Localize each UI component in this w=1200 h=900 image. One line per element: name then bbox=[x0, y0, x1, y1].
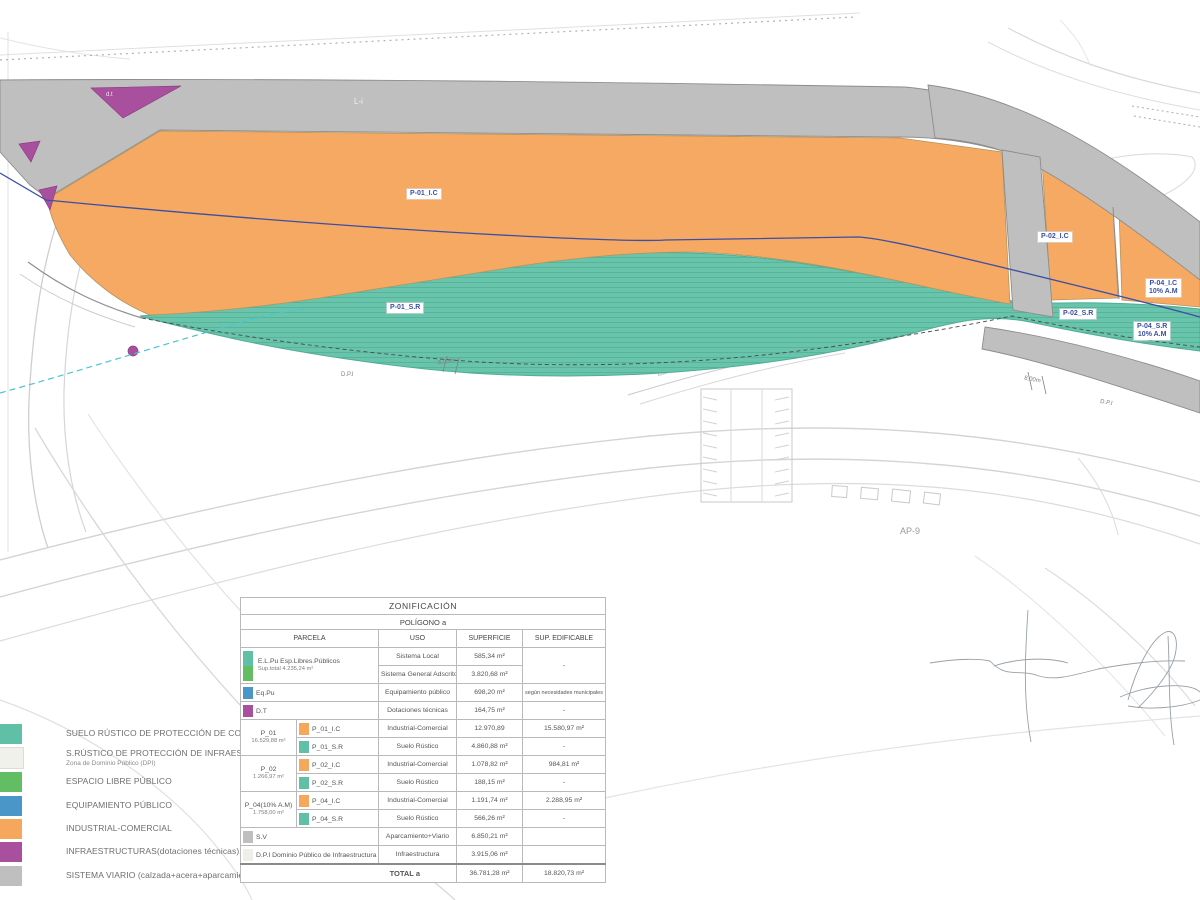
superficie-cell: 566,26 m² bbox=[457, 810, 523, 828]
swatch-dt bbox=[243, 705, 253, 717]
swatch-elpu bbox=[243, 651, 253, 681]
superficie-cell: 164,75 m² bbox=[457, 702, 523, 720]
parking-stalls bbox=[703, 397, 789, 496]
subparcel-code: P_02_I.C bbox=[312, 761, 340, 768]
subparcel-code: P_04_S.R bbox=[312, 815, 343, 822]
signature-stroke bbox=[930, 659, 1185, 678]
legend-swatch-suelo-rustico-costas bbox=[0, 724, 22, 744]
legend-swatch-srustico-infraestructuras bbox=[0, 747, 24, 769]
edificable-cell: - bbox=[523, 648, 606, 684]
subparcel-code: P_01_S.R bbox=[312, 743, 343, 750]
label-parcel-p04-ic-line1: P-04_I.C bbox=[1149, 280, 1178, 288]
edificable-cell: - bbox=[523, 738, 606, 756]
swatch-p01-ic bbox=[299, 723, 309, 735]
parcel-name: S.V bbox=[256, 833, 267, 840]
legend-swatch-sistema-viario bbox=[0, 866, 22, 886]
label-parcel-p02-sr: P-02_S.R bbox=[1060, 309, 1096, 319]
legend-label: INFRAESTRUCTURAS(dotaciones técnicas) bbox=[66, 846, 239, 856]
road-line bbox=[1078, 458, 1118, 535]
dotted-line bbox=[1134, 116, 1200, 127]
signature-stroke bbox=[994, 659, 1068, 666]
parcel-name: D.T bbox=[256, 707, 267, 714]
parcel-subtotal: 16.529,88 m² bbox=[243, 738, 294, 745]
subparcel-code: P_02_S.R bbox=[312, 779, 343, 786]
superficie-cell: 4.860,88 m² bbox=[457, 738, 523, 756]
edificable-cell: - bbox=[523, 702, 606, 720]
label-highway-ap9: AP-9 bbox=[900, 526, 920, 536]
building-outline bbox=[832, 486, 848, 498]
parcel-subtotal: 1.758,00 m² bbox=[243, 810, 294, 817]
superficie-cell: 188,15 m² bbox=[457, 774, 523, 792]
swatch-p04-ic bbox=[299, 795, 309, 807]
signature-stroke bbox=[1025, 610, 1031, 742]
legend-row-suelo-rustico-costas: SUELO RÚSTICO DE PROTECCIÓN DE COSTAS bbox=[0, 724, 245, 746]
table-row-elpu-1: E.L.Pu Esp.Libres.Públicos Sup.total 4.2… bbox=[241, 648, 606, 666]
signatures bbox=[930, 610, 1200, 745]
legend-row-srustico-infraestructuras: S.RÚSTICO DE PROTECCIÓN DE INFRAESTRUCTU… bbox=[0, 747, 245, 769]
swatch-p02-sr bbox=[299, 777, 309, 789]
uso-cell: Industrial-Comercial bbox=[379, 792, 457, 810]
legend-label: SUELO RÚSTICO DE PROTECCIÓN DE COSTAS bbox=[66, 728, 263, 738]
legend-label: ESPACIO LIBRE PÚBLICO bbox=[66, 776, 172, 786]
label-dpi-left: D.P.I bbox=[341, 372, 354, 378]
edificable-cell: 2.288,95 m² bbox=[523, 792, 606, 810]
road-line bbox=[29, 208, 62, 548]
legend-swatch-espacio-libre bbox=[0, 772, 22, 792]
label-parcel-p01-sr: P-01_S.R bbox=[387, 303, 423, 313]
table-row-sv: S.V Aparcamiento+Viario 6.850,21 m² bbox=[241, 828, 606, 846]
table-row-dpi: D.P.I Dominio Público de Infraestructura… bbox=[241, 846, 606, 865]
building-outline bbox=[891, 489, 910, 503]
superficie-cell: 585,34 m² bbox=[457, 648, 523, 666]
parcel-name: E.L.Pu Esp.Libres.Públicos bbox=[258, 658, 340, 666]
swatch-dpi bbox=[243, 849, 253, 861]
legend-swatch-equipamiento bbox=[0, 796, 22, 816]
swatch-p01-sr bbox=[299, 741, 309, 753]
superficie-cell: 12.970,89 bbox=[457, 720, 523, 738]
subparcel-code: P_01_I.C bbox=[312, 725, 340, 732]
legend-row-industrial: INDUSTRIAL-COMERCIAL bbox=[0, 819, 245, 841]
label-road-top: L-i bbox=[354, 97, 363, 106]
uso-cell: Suelo Rústico bbox=[379, 810, 457, 828]
label-parcel-p01-ic: P-01_I.C bbox=[407, 189, 441, 199]
uso-cell: Aparcamiento+Viario bbox=[379, 828, 457, 846]
road-line bbox=[605, 716, 1200, 798]
label-parcel-p04-ic: P-04_I.C 10% A.M bbox=[1146, 279, 1181, 297]
label-dt-area: d.t bbox=[106, 92, 113, 98]
parcel-subtotal: 1.266,97 m² bbox=[243, 774, 294, 781]
highway-line bbox=[0, 459, 1200, 597]
legend-sublabel: Zona de Dominio Público (DPI) bbox=[66, 760, 156, 767]
parcel-name: D.P.I Dominio Público de Infraestructura bbox=[256, 851, 376, 858]
superficie-cell: 3.820,68 m² bbox=[457, 666, 523, 684]
superficie-cell: 698,20 m² bbox=[457, 684, 523, 702]
superficie-cell: 1.191,74 m² bbox=[457, 792, 523, 810]
label-parcel-p04-sr: P-04_S.R 10% A.M bbox=[1134, 322, 1170, 340]
road-line bbox=[975, 556, 1165, 736]
total-label: TOTAL a bbox=[241, 864, 457, 883]
legend-row-sistema-viario: SISTEMA VIARIO (calzada+acera+aparcamien… bbox=[0, 866, 245, 888]
parcel-subtotal: Sup.total 4.235,24 m² bbox=[258, 666, 340, 673]
road-line bbox=[0, 38, 130, 59]
uso-cell: Suelo Rústico bbox=[379, 774, 457, 792]
parcel-name: P_02 bbox=[243, 766, 294, 774]
superficie-cell: 3.915,06 m² bbox=[457, 846, 523, 865]
label-parcel-p04-ic-line2: 10% A.M bbox=[1149, 288, 1178, 296]
table-row-p04-ic: P_04(10% A.M) 1.758,00 m² P_04_I.C Indus… bbox=[241, 792, 606, 810]
swatch-sv bbox=[243, 831, 253, 843]
table-row-p01-ic: P_01 16.529,88 m² P_01_I.C Industrial-Co… bbox=[241, 720, 606, 738]
edificable-cell bbox=[523, 828, 606, 846]
col-header-parcela: PARCELA bbox=[241, 630, 379, 648]
building-outline bbox=[923, 492, 940, 505]
uso-cell: Sistema General Adscrito bbox=[379, 666, 457, 684]
uso-cell: Industrial-Comercial bbox=[379, 720, 457, 738]
legend-row-espacio-libre: ESPACIO LIBRE PÚBLICO bbox=[0, 772, 245, 794]
uso-cell: Sistema Local bbox=[379, 648, 457, 666]
legend-row-infraestructuras: INFRAESTRUCTURAS(dotaciones técnicas) bbox=[0, 842, 245, 864]
building-outline bbox=[861, 487, 879, 499]
ramp-line bbox=[1008, 28, 1200, 93]
boundary-tick-line bbox=[0, 17, 855, 60]
table-header-row: PARCELA USO SUPERFICIE SUP. EDIFICABLE bbox=[241, 630, 606, 648]
legend-label: INDUSTRIAL-COMERCIAL bbox=[66, 823, 172, 833]
swatch-eqpu bbox=[243, 687, 253, 699]
uso-cell: Dotaciones técnicas bbox=[379, 702, 457, 720]
col-header-edificable: SUP. EDIFICABLE bbox=[523, 630, 606, 648]
parcel-name: Eq.Pu bbox=[256, 689, 275, 696]
uso-cell: Industrial-Comercial bbox=[379, 756, 457, 774]
superficie-cell: 6.850,21 m² bbox=[457, 828, 523, 846]
legend-swatch-infraestructuras bbox=[0, 842, 22, 862]
legend-row-equipamiento: EQUIPAMIENTO PÚBLICO bbox=[0, 796, 245, 818]
edificable-cell: 15.580,97 m² bbox=[523, 720, 606, 738]
label-parcel-p04-sr-line2: 10% A.M bbox=[1137, 331, 1167, 339]
zoning-plan-canvas: P-01_I.C P-01_S.R P-02_I.C P-02_S.R P-04… bbox=[0, 0, 1200, 900]
table-row-eqpu: Eq.Pu Equipamiento público 698,20 m² seg… bbox=[241, 684, 606, 702]
uso-cell: Infraestructura bbox=[379, 846, 457, 865]
table-row-total: TOTAL a 36.781,28 m² 18.820,73 m² bbox=[241, 864, 606, 883]
legend-label: SISTEMA VIARIO (calzada+acera+aparcamien… bbox=[66, 870, 258, 880]
edificable-cell: según necesidades municipales bbox=[523, 684, 606, 702]
ramp-line bbox=[988, 42, 1200, 110]
edificable-cell: - bbox=[523, 810, 606, 828]
legend-label: EQUIPAMIENTO PÚBLICO bbox=[66, 800, 172, 810]
legend-swatch-industrial bbox=[0, 819, 22, 839]
label-parcel-p02-ic: P-02_I.C bbox=[1038, 232, 1072, 242]
superficie-cell: 1.078,82 m² bbox=[457, 756, 523, 774]
edificable-cell: - bbox=[523, 774, 606, 792]
col-header-uso: USO bbox=[379, 630, 457, 648]
parcel-name: P_01 bbox=[243, 730, 294, 738]
table-row-dt: D.T Dotaciones técnicas 164,75 m² - bbox=[241, 702, 606, 720]
signature-stroke bbox=[1168, 636, 1174, 745]
boundary-line bbox=[0, 13, 860, 55]
parcel-name: P_04(10% A.M) bbox=[243, 802, 294, 810]
table-title: ZONIFICACIÓN bbox=[241, 598, 606, 615]
subparcel-code: P_04_I.C bbox=[312, 797, 340, 804]
table-row-p02-ic: P_02 1.266,97 m² P_02_I.C Industrial-Com… bbox=[241, 756, 606, 774]
zoning-table: ZONIFICACIÓN POLÍGONO a PARCELA USO SUPE… bbox=[240, 597, 605, 883]
edificable-cell bbox=[523, 846, 606, 865]
total-edificable: 18.820,73 m² bbox=[523, 864, 606, 883]
table-subtitle: POLÍGONO a bbox=[241, 615, 606, 630]
infrastructure-spot bbox=[128, 346, 138, 356]
total-superficie: 36.781,28 m² bbox=[457, 864, 523, 883]
label-parcel-p04-sr-line1: P-04_S.R bbox=[1137, 323, 1167, 331]
col-header-superficie: SUPERFICIE bbox=[457, 630, 523, 648]
edificable-cell: 984,81 m² bbox=[523, 756, 606, 774]
map-legend: SUELO RÚSTICO DE PROTECCIÓN DE COSTAS S.… bbox=[0, 716, 245, 900]
swatch-p04-sr bbox=[299, 813, 309, 825]
swatch-p02-ic bbox=[299, 759, 309, 771]
uso-cell: Suelo Rústico bbox=[379, 738, 457, 756]
uso-cell: Equipamiento público bbox=[379, 684, 457, 702]
